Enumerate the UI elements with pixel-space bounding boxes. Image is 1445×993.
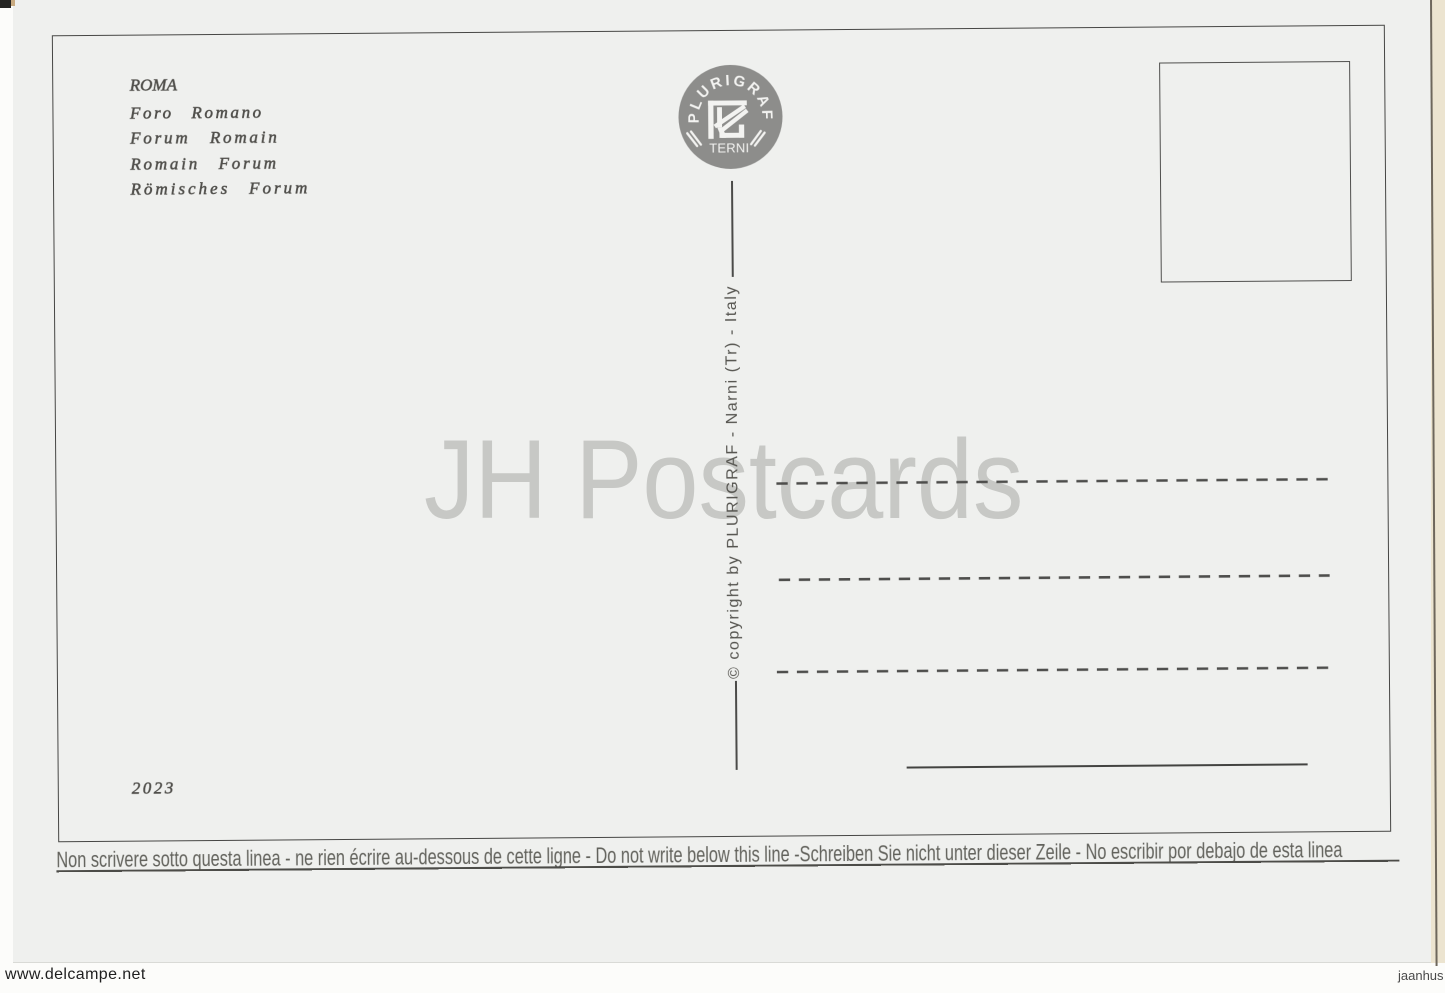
svg-text:TERNI: TERNI [709,140,749,155]
